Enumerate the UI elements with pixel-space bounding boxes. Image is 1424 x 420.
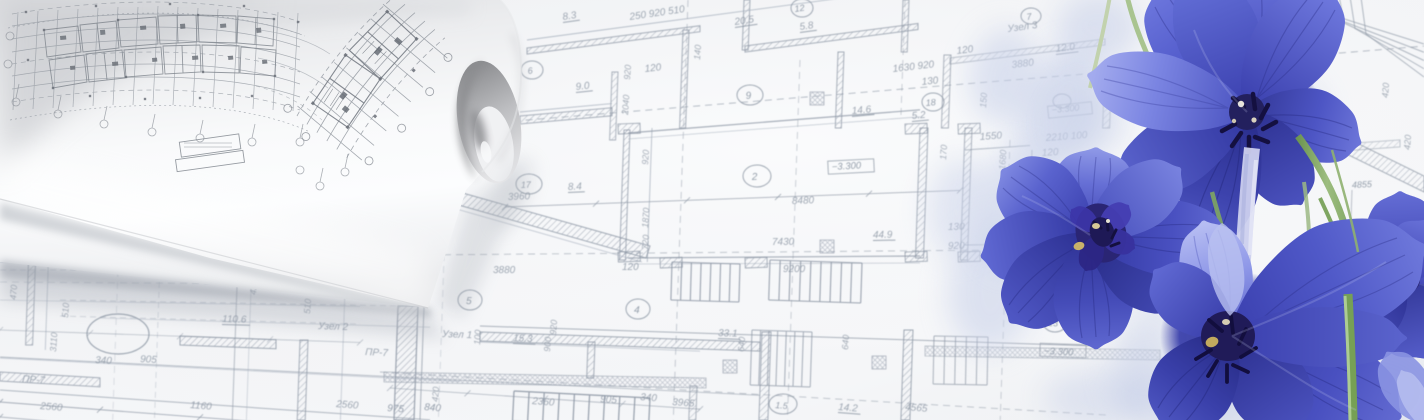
svg-text:4565: 4565 <box>905 402 928 415</box>
svg-text:3880: 3880 <box>493 265 516 276</box>
svg-text:1.5: 1.5 <box>775 400 789 411</box>
svg-text:ПР-7: ПР-7 <box>22 374 46 386</box>
svg-text:120: 120 <box>622 262 639 273</box>
svg-text:Узел 1: Узел 1 <box>441 329 472 341</box>
svg-text:120: 120 <box>956 44 974 57</box>
svg-text:130: 130 <box>921 75 939 88</box>
svg-text:1870: 1870 <box>640 207 651 228</box>
svg-text:120: 120 <box>644 62 662 75</box>
svg-text:905: 905 <box>140 354 158 366</box>
svg-text:ПР-7: ПР-7 <box>365 347 389 359</box>
svg-text:3965: 3965 <box>672 397 695 410</box>
svg-text:140: 140 <box>692 44 703 60</box>
svg-text:420: 420 <box>1402 134 1413 150</box>
svg-text:170: 170 <box>938 144 949 160</box>
svg-text:44.9: 44.9 <box>873 230 893 241</box>
svg-text:3110: 3110 <box>48 332 59 352</box>
svg-text:420: 420 <box>430 386 441 402</box>
svg-text:18: 18 <box>925 97 936 108</box>
svg-text:640: 640 <box>840 334 851 350</box>
svg-text:33.1: 33.1 <box>718 328 738 340</box>
svg-text:905: 905 <box>600 394 618 406</box>
svg-text:2040: 2040 <box>620 94 631 116</box>
svg-text:920: 920 <box>622 64 633 80</box>
svg-text:920: 920 <box>640 149 651 165</box>
svg-text:−3.300: −3.300 <box>832 160 863 173</box>
svg-text:12: 12 <box>794 3 805 14</box>
svg-text:840: 840 <box>424 402 442 414</box>
svg-text:975: 975 <box>387 403 405 415</box>
svg-text:2560: 2560 <box>39 401 63 414</box>
svg-text:920: 920 <box>548 319 559 335</box>
svg-text:4855: 4855 <box>1352 179 1373 190</box>
svg-text:15.3: 15.3 <box>513 333 533 345</box>
svg-text:4: 4 <box>634 305 640 316</box>
svg-text:8480: 8480 <box>792 195 815 207</box>
svg-text:900: 900 <box>542 336 553 352</box>
svg-text:340: 340 <box>640 392 658 404</box>
svg-text:2: 2 <box>751 172 759 183</box>
svg-text:340: 340 <box>95 355 113 367</box>
svg-text:100: 100 <box>472 329 483 345</box>
svg-text:8.4: 8.4 <box>568 181 583 193</box>
svg-text:1160: 1160 <box>190 400 213 413</box>
svg-text:1550: 1550 <box>979 130 1002 143</box>
svg-text:7430: 7430 <box>772 237 795 248</box>
svg-text:9200: 9200 <box>783 264 806 275</box>
svg-text:2360: 2360 <box>531 396 555 409</box>
svg-text:420: 420 <box>1380 82 1391 98</box>
svg-text:2560: 2560 <box>335 399 359 412</box>
svg-text:720: 720 <box>640 234 651 250</box>
svg-text:640: 640 <box>736 336 747 352</box>
